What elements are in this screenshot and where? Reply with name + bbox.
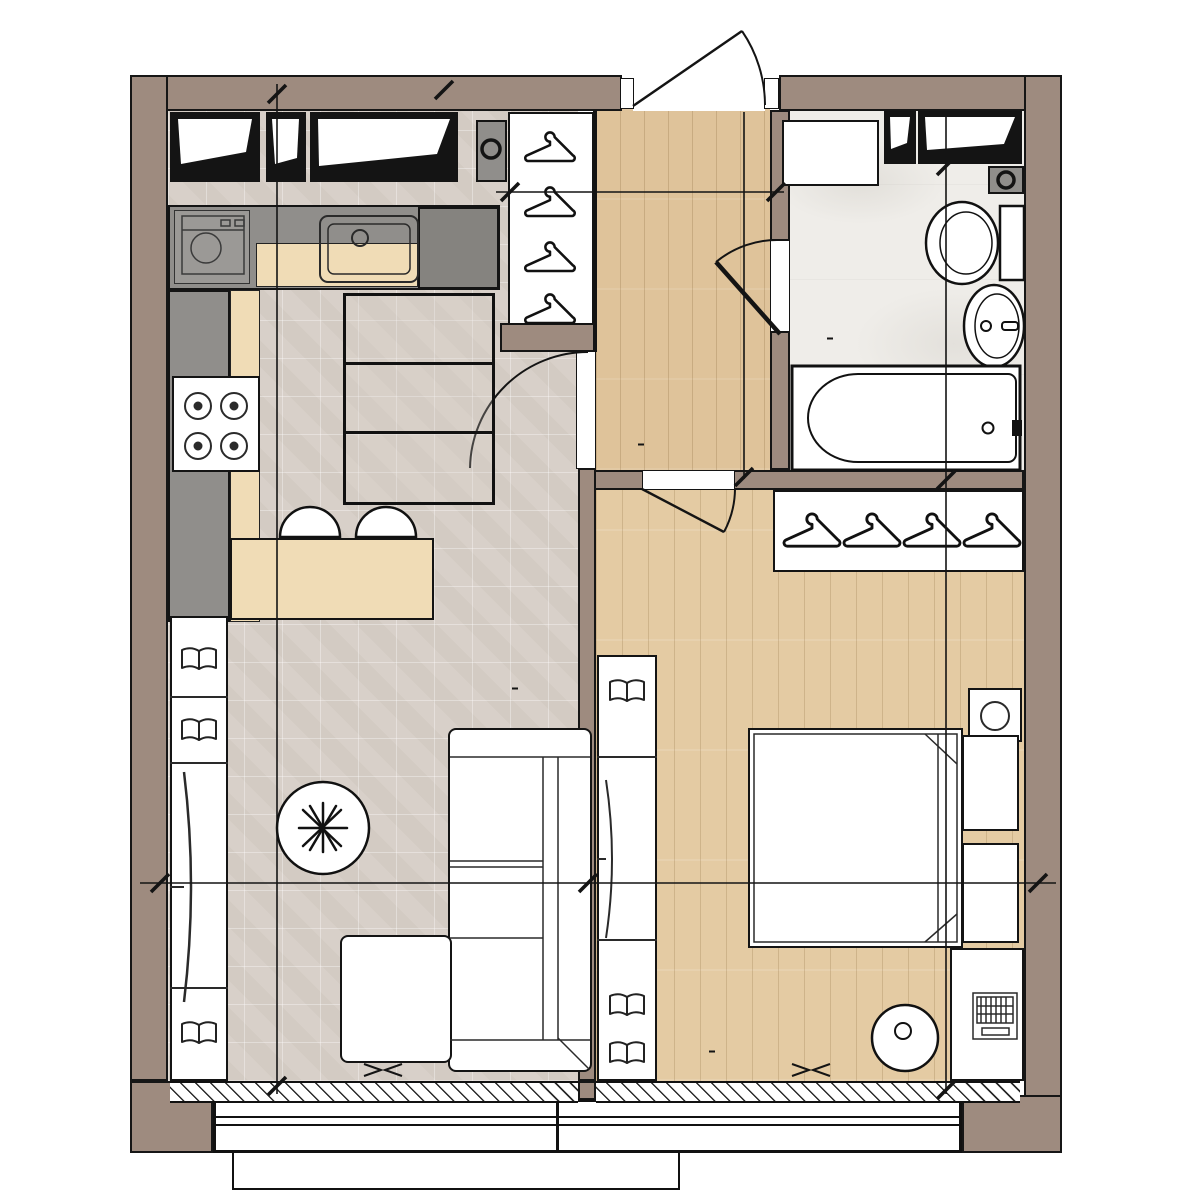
hall-wardrobe: [508, 112, 594, 325]
desk: [950, 948, 1024, 1081]
living-shelf-unit: [170, 616, 228, 1081]
bed: [748, 728, 963, 948]
stat-row: [346, 296, 492, 365]
kitchen-bar-table: [230, 538, 434, 620]
entry-door-jamb-right: [764, 78, 779, 109]
stove: [172, 376, 260, 472]
stat-row: [346, 365, 492, 434]
wall-right: [1024, 75, 1062, 1153]
washing-machine-label: [784, 122, 877, 184]
entry-door-opening: [633, 73, 765, 111]
washing-machine: [782, 120, 879, 186]
wall-bedroom-top-right: [733, 470, 1024, 490]
balcony-left-lower: [232, 1153, 680, 1190]
kitchen-worktop-wood: [256, 243, 418, 287]
nightstand: [968, 688, 1022, 742]
bedside-panel-top: [962, 735, 1019, 831]
sofa: [448, 728, 592, 1072]
bedroom-area-label: [709, 1050, 715, 1053]
living-area-label: [512, 687, 518, 690]
wall-bottom-stub: [578, 1081, 596, 1100]
wall-closet-stub: [500, 323, 596, 352]
wall-top-right: [779, 75, 1062, 111]
bedroom-door-opening: [642, 470, 735, 490]
balcony-rail: [559, 1116, 959, 1118]
balcony-right: [556, 1099, 962, 1153]
bedroom-wardrobe: [773, 490, 1024, 572]
wall-bottom-right-block: [962, 1095, 1062, 1153]
living-window-strip: [170, 1081, 578, 1103]
bedside-panel-bottom: [962, 843, 1019, 943]
kitchen-cabinet-right: [418, 207, 499, 289]
entry-door-jamb-left: [620, 78, 634, 109]
fridge: [174, 210, 250, 284]
living-door-leaf: [576, 351, 596, 469]
unit-stat-table: [343, 293, 495, 505]
bathroom-area-label: [827, 337, 833, 340]
kitchen-vent-shaft: [476, 120, 507, 182]
bedroom-window-strip: [596, 1081, 1020, 1103]
bedroom-dresser-unit: [597, 655, 657, 1081]
floor-plan: [0, 0, 1200, 1200]
ottoman: [340, 935, 452, 1063]
wall-top-left: [130, 75, 622, 111]
bathroom-door-opening: [770, 240, 790, 332]
hallway-area-label: [638, 443, 644, 446]
balcony-rail: [559, 1124, 959, 1126]
hallway-floor: [596, 108, 770, 470]
wall-bedroom-top-left: [594, 470, 644, 490]
bathroom-vent-shaft: [988, 166, 1024, 194]
wall-hall-bath-lower: [770, 331, 790, 470]
stat-row: [346, 434, 492, 502]
wall-left: [130, 75, 168, 1081]
